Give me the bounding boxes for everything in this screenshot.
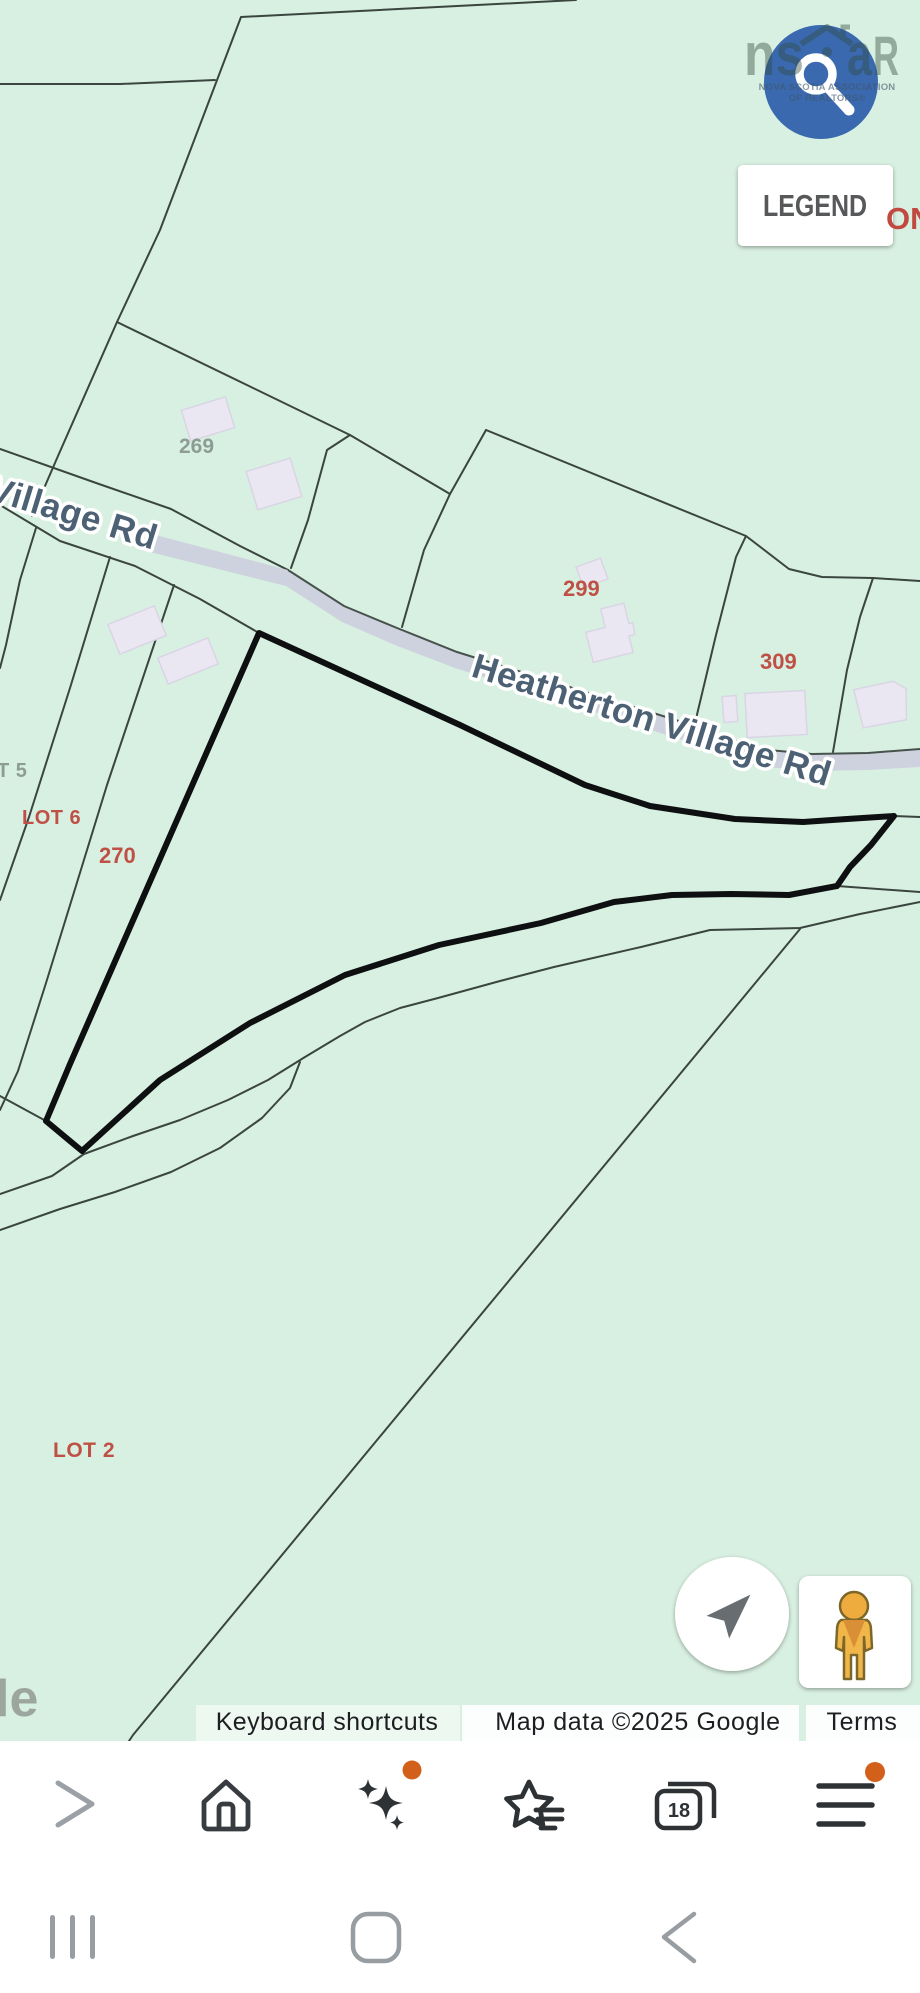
svg-text:le: le [0,1670,38,1728]
svg-text:ns: ns [744,21,804,88]
svg-text:LOT 6: LOT 6 [22,807,81,829]
svg-text:T 5: T 5 [0,760,27,782]
svg-text:LOT 2: LOT 2 [53,1439,115,1462]
svg-text:a: a [847,21,872,88]
svg-text:18: 18 [668,1800,690,1822]
svg-text:Map data ©2025 Google: Map data ©2025 Google [495,1708,780,1736]
svg-text:ON: ON [886,201,920,236]
svg-text:Keyboard shortcuts: Keyboard shortcuts [216,1708,439,1736]
svg-text:Terms: Terms [826,1708,897,1736]
svg-text:OF REALTORS®: OF REALTORS® [789,93,866,104]
svg-text:299: 299 [563,576,600,601]
svg-text:LEGEND: LEGEND [763,188,867,223]
svg-text:NOVA SCOTIA ASSOCIATION: NOVA SCOTIA ASSOCIATION [759,82,896,93]
svg-text:309: 309 [760,649,797,674]
svg-text:269: 269 [179,435,214,458]
svg-text:R: R [873,24,899,87]
svg-text:270: 270 [99,843,136,868]
